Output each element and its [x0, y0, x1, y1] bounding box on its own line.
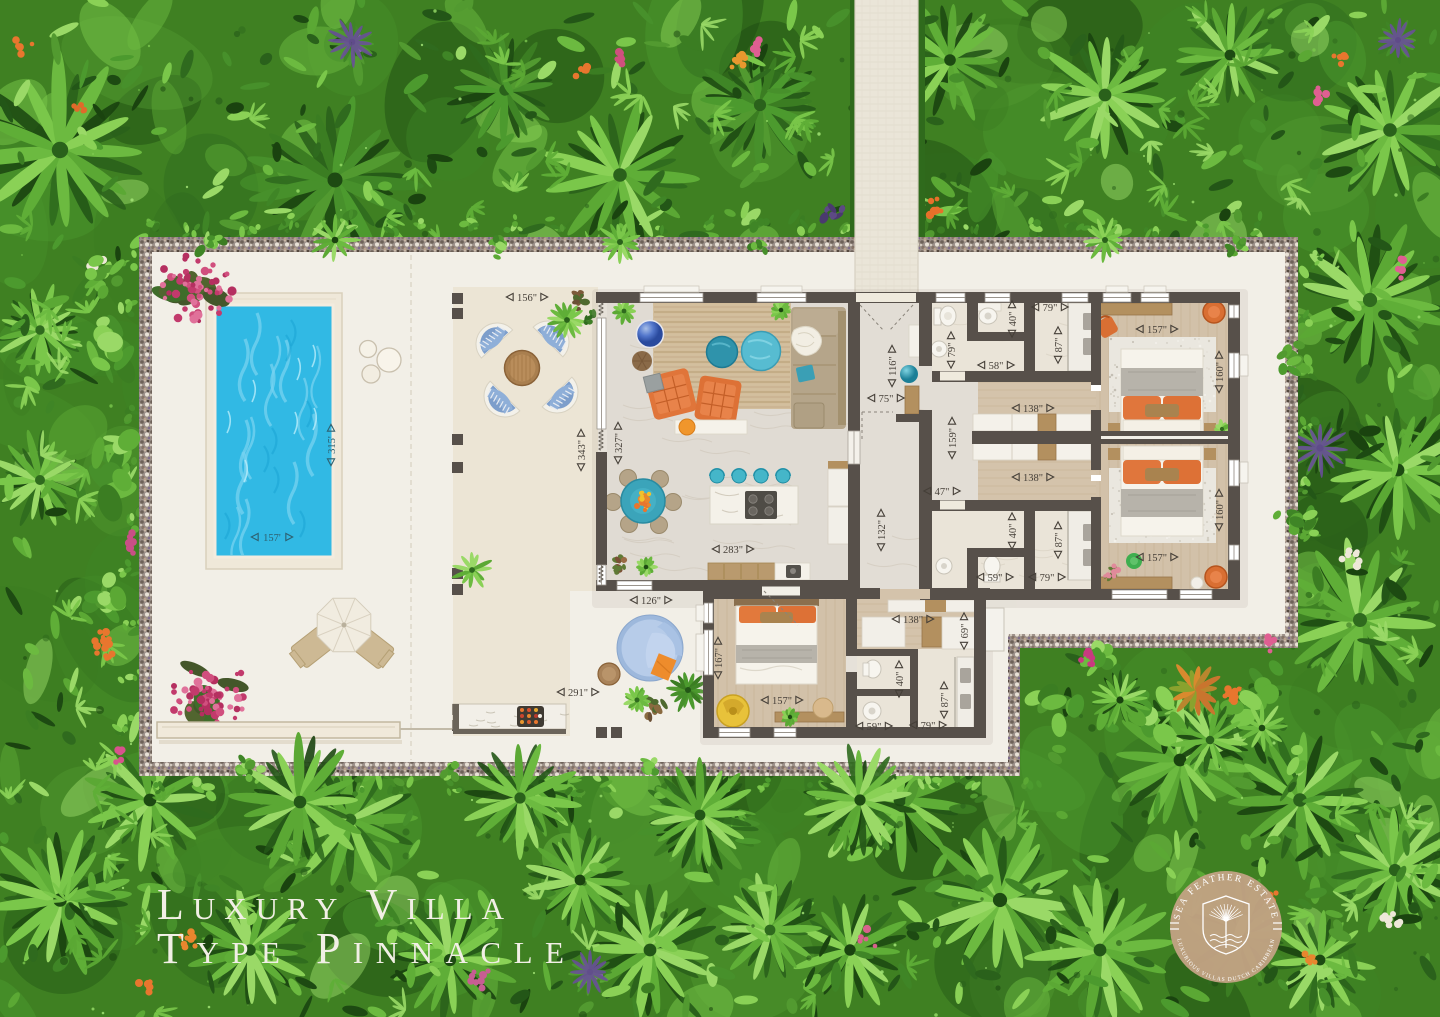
svg-text:327": 327" — [614, 433, 625, 453]
svg-text:160": 160" — [1215, 362, 1226, 382]
svg-text:79": 79" — [1043, 303, 1058, 314]
svg-text:138": 138" — [1023, 404, 1043, 415]
svg-text:59": 59" — [867, 722, 882, 733]
svg-text:69": 69" — [960, 624, 971, 639]
svg-text:40": 40" — [1008, 312, 1019, 327]
svg-text:157": 157" — [1147, 553, 1167, 564]
svg-text:116": 116" — [888, 356, 899, 376]
svg-text:291": 291" — [568, 688, 588, 699]
svg-text:157': 157' — [263, 533, 281, 544]
svg-text:343": 343" — [577, 440, 588, 460]
svg-text:58": 58" — [989, 361, 1004, 372]
svg-text:79": 79" — [947, 343, 958, 358]
svg-text:160": 160" — [1215, 500, 1226, 520]
svg-text:138": 138" — [903, 615, 923, 626]
svg-text:132": 132" — [877, 520, 888, 540]
svg-text:87": 87" — [940, 693, 951, 708]
svg-text:47": 47" — [935, 487, 950, 498]
svg-text:157": 157" — [772, 696, 792, 707]
svg-text:87": 87" — [1054, 338, 1065, 353]
svg-text:75": 75" — [879, 394, 894, 405]
svg-text:79": 79" — [921, 721, 936, 732]
svg-text:159": 159" — [948, 428, 959, 448]
svg-text:315': 315' — [327, 436, 338, 454]
svg-text:59": 59" — [988, 573, 1003, 584]
svg-text:283": 283" — [723, 545, 743, 556]
svg-text:157": 157" — [1147, 325, 1167, 336]
svg-text:138": 138" — [1023, 473, 1043, 484]
svg-text:167": 167" — [714, 648, 725, 668]
svg-text:40": 40" — [1008, 524, 1019, 539]
svg-text:156": 156" — [517, 293, 537, 304]
svg-text:87": 87" — [1054, 533, 1065, 548]
svg-text:126": 126" — [641, 596, 661, 607]
svg-text:79": 79" — [1040, 573, 1055, 584]
svg-text:40": 40" — [895, 672, 906, 687]
